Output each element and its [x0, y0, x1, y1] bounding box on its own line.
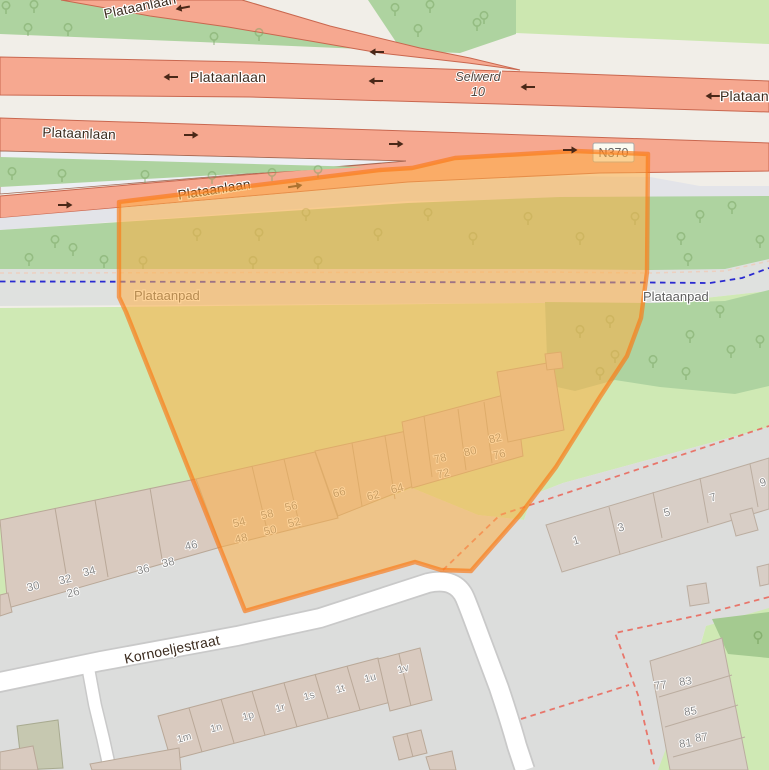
svg-text:Selwerd: Selwerd	[455, 70, 501, 84]
svg-text:87: 87	[694, 731, 708, 745]
svg-text:Plataanlaan: Plataanlaan	[42, 125, 116, 143]
svg-text:83: 83	[678, 675, 692, 689]
svg-text:85: 85	[683, 705, 697, 719]
svg-text:10: 10	[471, 85, 485, 99]
svg-text:81: 81	[678, 737, 692, 751]
svg-text:Plataanpad: Plataanpad	[643, 289, 709, 304]
svg-text:Plataan: Plataan	[720, 88, 769, 104]
svg-text:Plataanlaan: Plataanlaan	[190, 69, 266, 85]
svg-text:77: 77	[653, 679, 667, 693]
